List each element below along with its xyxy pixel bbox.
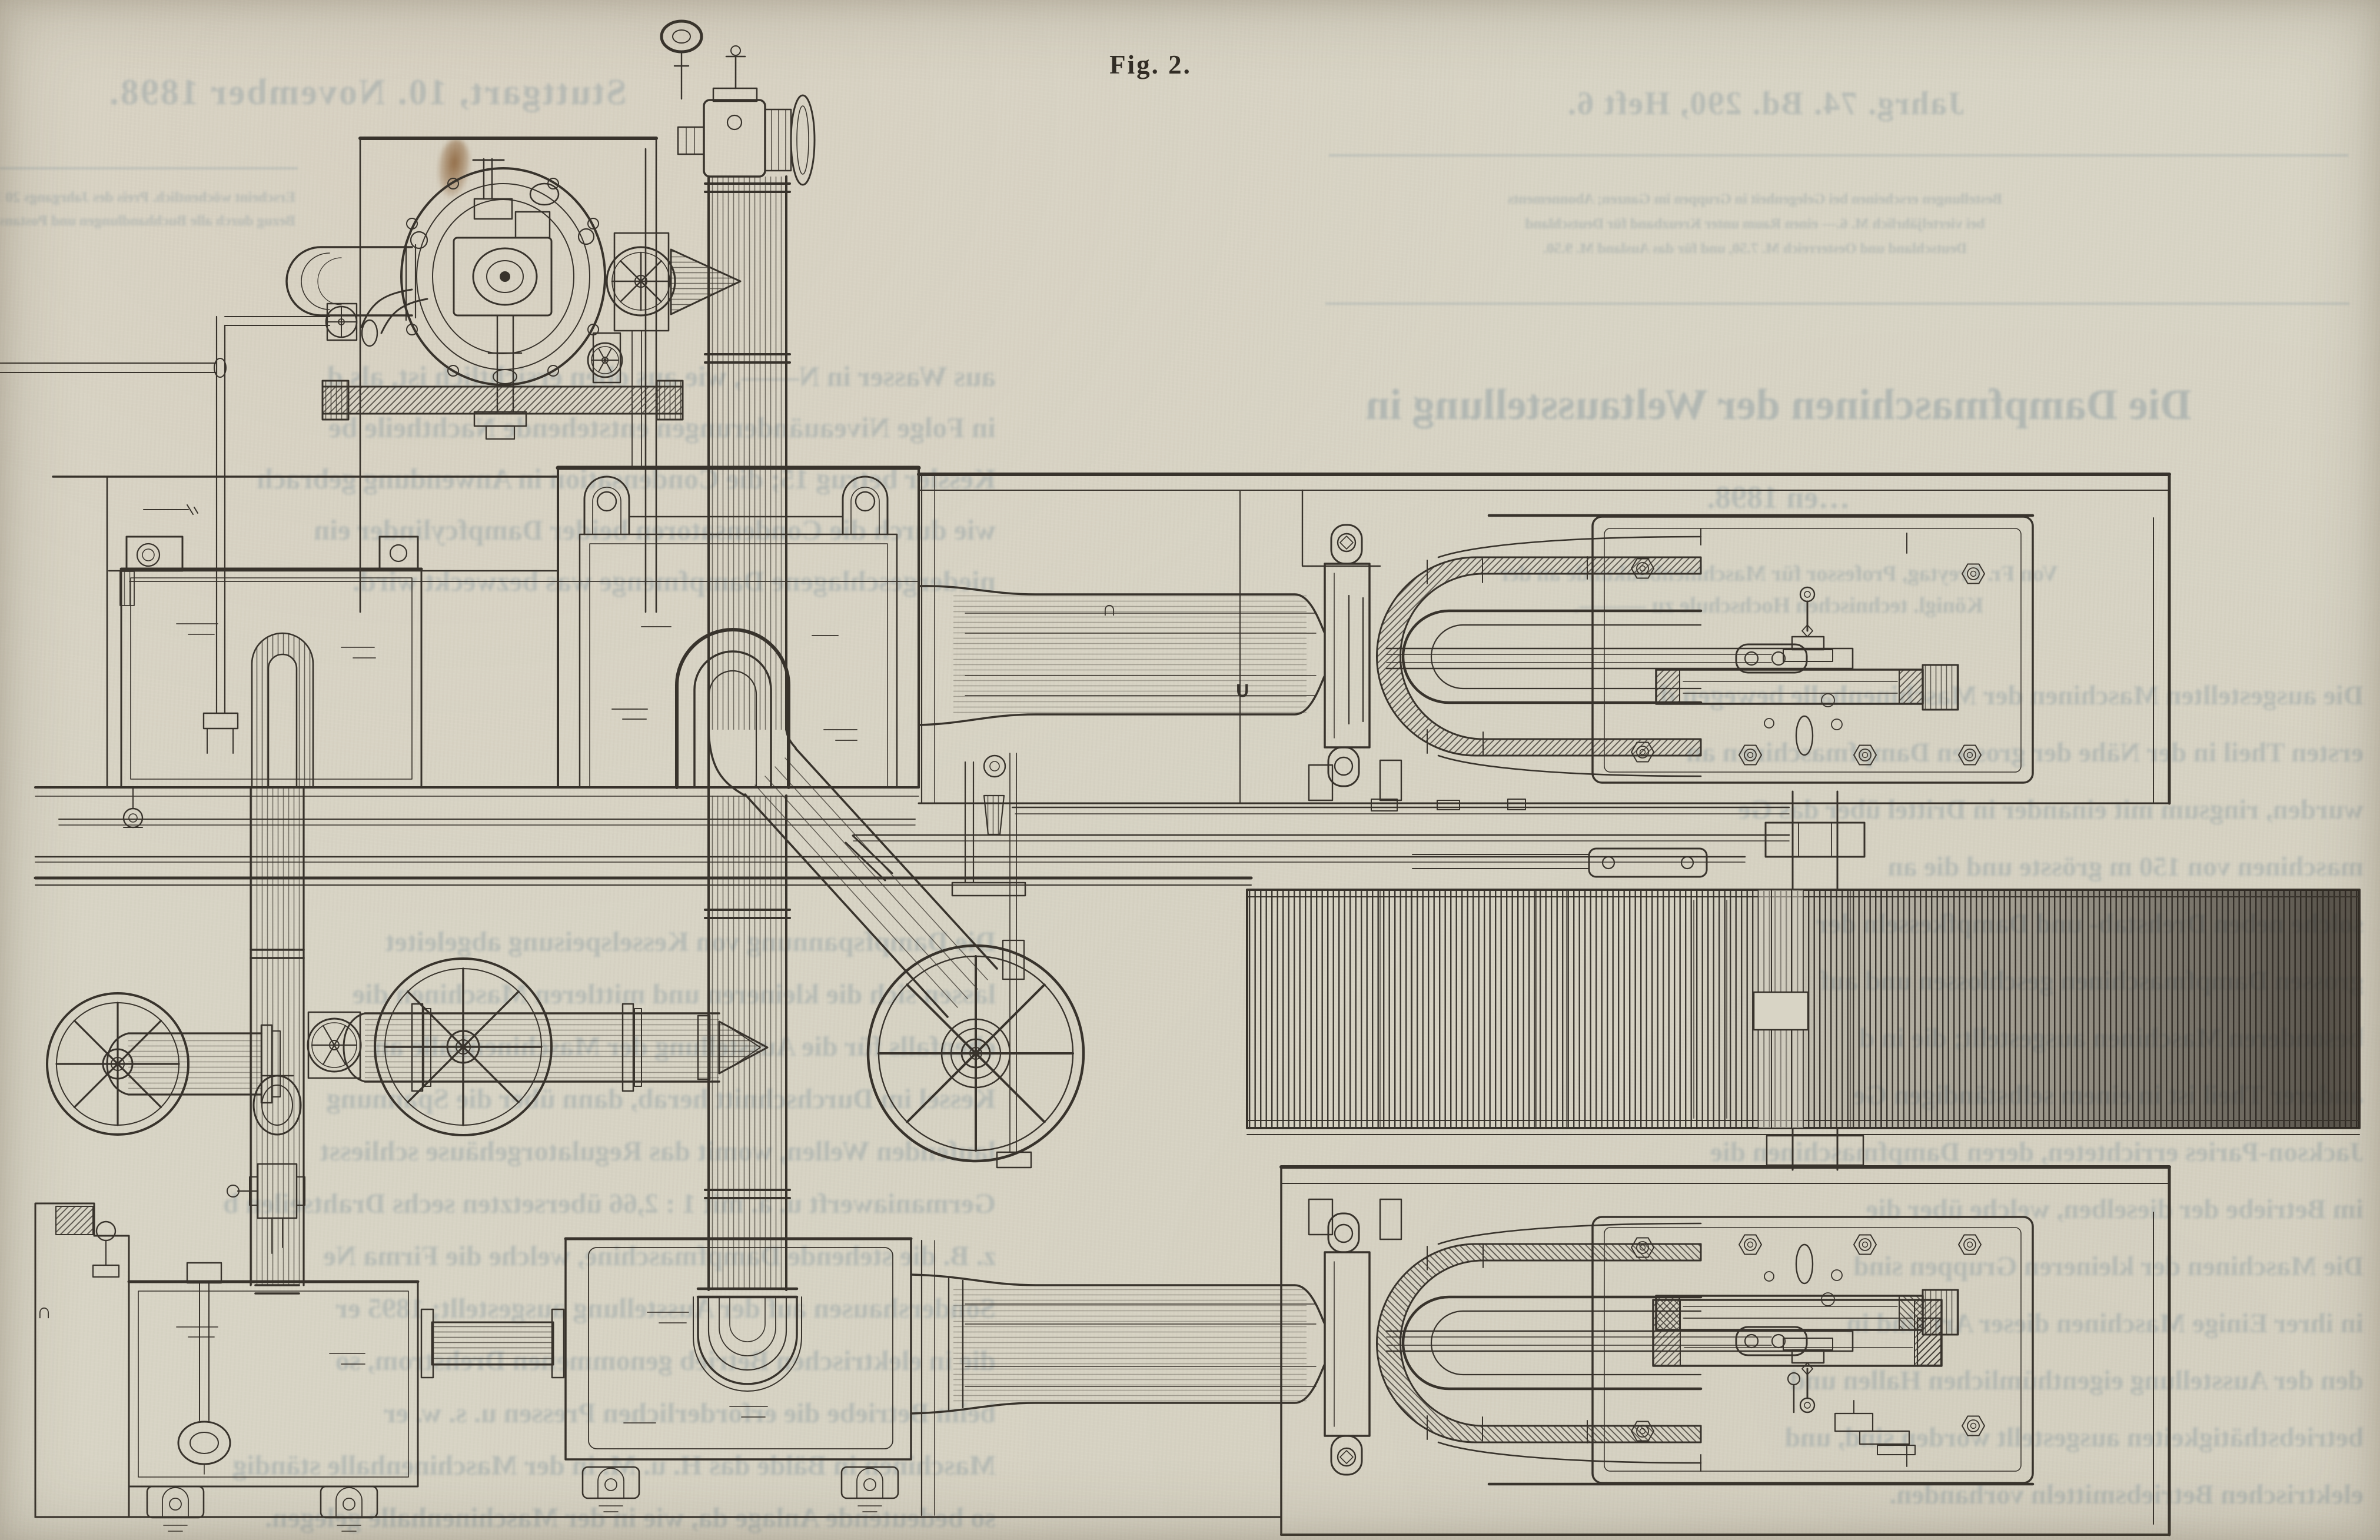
ref-mark-cup: ∪ [1235, 678, 1250, 701]
handwheel-left [31, 977, 204, 1150]
handwheel-right [839, 916, 1113, 1191]
scanned-journal-page: Stuttgart, 10. November 1898. Erscheint … [0, 0, 2380, 1540]
stop-valve-and-gauge [662, 21, 815, 185]
engraving-steam-engine-plan: ∩ ∪ ∩ [0, 0, 2380, 1540]
ref-mark-cap: ∩ [1102, 597, 1117, 620]
handwheel-middle [353, 936, 574, 1158]
right-cylinder-unit [1309, 515, 2033, 800]
valve-handwheels-and-branches [31, 730, 1113, 1293]
lower-left-cylinder-boxes [93, 1222, 911, 1531]
main-vertical-steam-pipe [693, 177, 802, 1391]
left-cylinder-box-upper [121, 537, 421, 787]
valve-gear-bracket [952, 753, 1031, 1168]
governor-assembly [287, 138, 740, 612]
rope-drum [1247, 890, 2359, 1128]
ref-mark-cap2: ∩ [36, 1299, 52, 1323]
